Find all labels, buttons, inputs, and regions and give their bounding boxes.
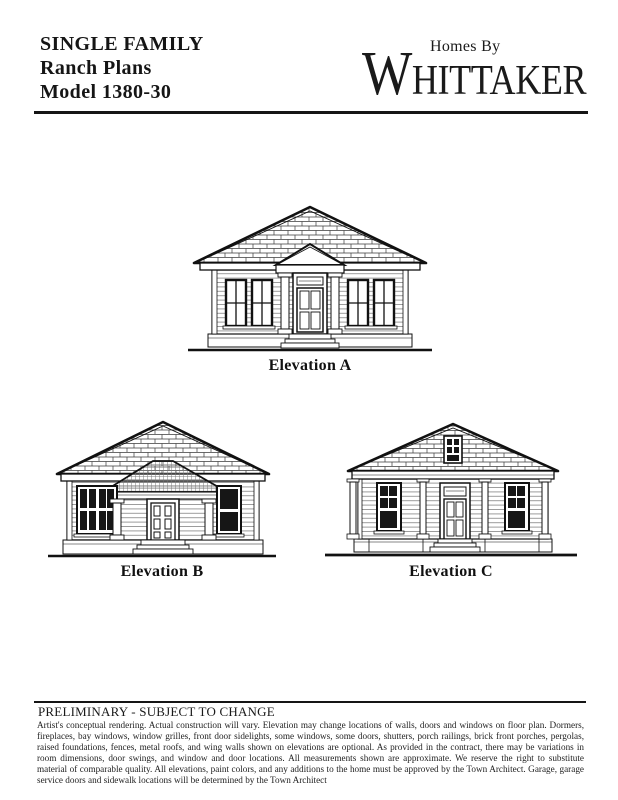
plan-title-line1: SINGLE FAMILY xyxy=(40,32,204,56)
elevation-a-steps xyxy=(281,334,339,348)
elevation-b-drawing xyxy=(46,416,278,562)
brochure-page: SINGLE FAMILY Ranch Plans Model 1380-30 … xyxy=(0,0,618,800)
elevation-a-label: Elevation A xyxy=(186,357,434,375)
elevation-a-drawing xyxy=(186,194,434,354)
builder-logo-rest: HITTAKER xyxy=(412,58,586,104)
elevation-b-door xyxy=(147,499,179,540)
header-divider xyxy=(34,111,588,114)
preliminary-status: PRELIMINARY - SUBJECT TO CHANGE xyxy=(38,704,275,720)
plan-title-line2: Ranch Plans xyxy=(40,56,204,80)
elevation-a-door xyxy=(293,273,327,334)
footer-divider xyxy=(34,701,586,703)
disclaimer-text: Artist's conceptual rendering. Actual co… xyxy=(37,720,584,785)
elevation-c-drawing xyxy=(325,421,577,559)
elevation-c-door xyxy=(440,483,470,539)
builder-logo: Homes By WHITTAKER xyxy=(362,38,594,107)
elevation-b-label: Elevation B xyxy=(46,563,278,581)
elevation-c-attic-window xyxy=(444,436,462,463)
elevation-c-label: Elevation C xyxy=(325,563,577,581)
elevation-c-window-left xyxy=(374,483,404,534)
elevation-b-steps xyxy=(133,540,193,554)
builder-logo-name: WHITTAKER xyxy=(362,48,562,107)
elevation-c-window-right xyxy=(502,483,532,534)
builder-logo-initial: W xyxy=(362,40,412,108)
plan-title-line3: Model 1380-30 xyxy=(40,80,204,104)
elevation-b-window-right xyxy=(214,486,244,537)
plan-title: SINGLE FAMILY Ranch Plans Model 1380-30 xyxy=(40,32,204,104)
